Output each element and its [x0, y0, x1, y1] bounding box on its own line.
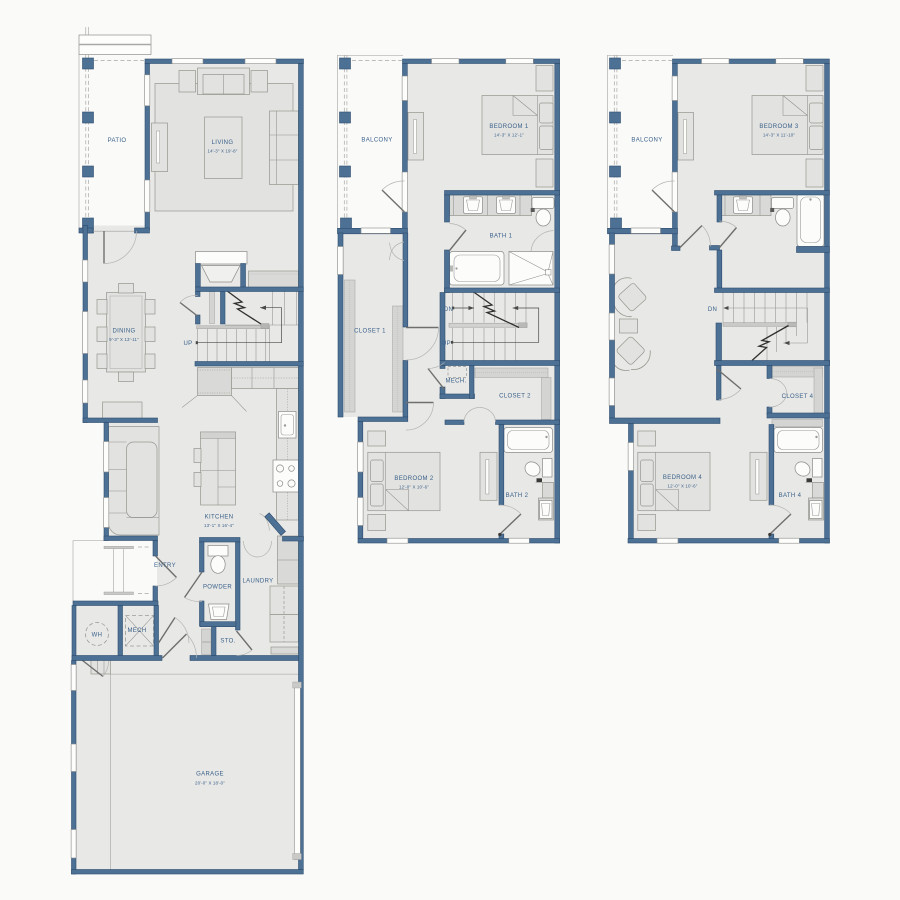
- svg-text:20'-0" X 18'-0": 20'-0" X 18'-0": [195, 781, 225, 786]
- svg-text:LAUNDRY: LAUNDRY: [242, 579, 273, 585]
- svg-text:GARAGE: GARAGE: [196, 772, 224, 778]
- svg-text:LIVING: LIVING: [212, 140, 234, 146]
- svg-text:14'-3" X 11'-10": 14'-3" X 11'-10": [763, 133, 796, 138]
- svg-text:9'-3" X 13'-11": 9'-3" X 13'-11": [109, 337, 139, 342]
- svg-text:UP: UP: [442, 341, 451, 347]
- svg-text:CLOSET 1: CLOSET 1: [354, 328, 386, 334]
- svg-text:12'-0" X 10'-6": 12'-0" X 10'-6": [399, 485, 429, 490]
- svg-text:PATIO: PATIO: [108, 138, 127, 144]
- svg-text:WH: WH: [92, 633, 103, 639]
- svg-text:STO.: STO.: [220, 639, 235, 645]
- svg-text:UP: UP: [183, 341, 192, 347]
- svg-text:DN: DN: [444, 307, 453, 313]
- svg-text:BEDROOM 2: BEDROOM 2: [394, 476, 433, 482]
- svg-text:DN: DN: [708, 307, 717, 313]
- svg-text:BATH 4: BATH 4: [779, 493, 802, 499]
- svg-text:CLOSET 4: CLOSET 4: [782, 394, 814, 400]
- svg-text:14'-3" X 12'-1": 14'-3" X 12'-1": [494, 133, 524, 138]
- svg-text:MECH: MECH: [127, 628, 146, 634]
- svg-text:13'-1" X 16'-4": 13'-1" X 16'-4": [204, 523, 234, 528]
- svg-text:DINING: DINING: [112, 329, 135, 335]
- svg-text:BALCONY: BALCONY: [361, 138, 392, 144]
- svg-text:CLOSET 2: CLOSET 2: [499, 394, 531, 400]
- svg-text:KITCHEN: KITCHEN: [205, 515, 234, 521]
- svg-text:BEDROOM 4: BEDROOM 4: [663, 475, 702, 481]
- svg-text:BEDROOM 3: BEDROOM 3: [759, 124, 798, 130]
- svg-text:BEDROOM 1: BEDROOM 1: [489, 124, 528, 130]
- svg-text:14'-3" X 19'-8": 14'-3" X 19'-8": [208, 149, 238, 154]
- svg-text:MECH.: MECH.: [445, 379, 466, 385]
- svg-text:BATH 2: BATH 2: [506, 493, 529, 499]
- svg-text:POWDER: POWDER: [203, 585, 232, 591]
- svg-text:BALCONY: BALCONY: [631, 138, 662, 144]
- svg-text:ENTRY: ENTRY: [154, 563, 176, 569]
- svg-text:BATH 1: BATH 1: [490, 234, 513, 240]
- svg-text:12'-0" X 10'-6": 12'-0" X 10'-6": [668, 484, 698, 489]
